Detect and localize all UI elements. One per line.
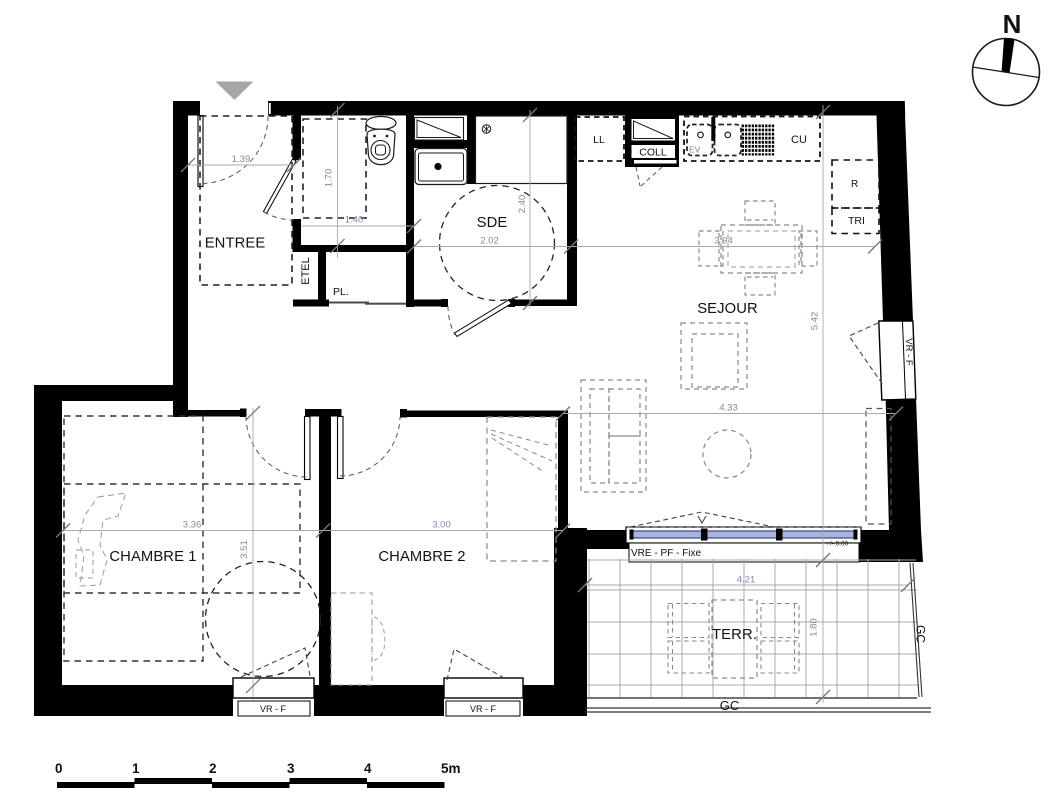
svg-text:TRI: TRI: [848, 215, 865, 227]
svg-text:2.02: 2.02: [480, 236, 499, 247]
svg-text:5.42: 5.42: [810, 312, 821, 331]
svg-text:1.40: 1.40: [345, 215, 364, 226]
svg-text:VR - F: VR - F: [903, 338, 914, 366]
svg-text:R: R: [851, 179, 858, 190]
svg-text:+/- 0.00: +/- 0.00: [826, 541, 849, 548]
svg-text:4: 4: [364, 761, 372, 776]
svg-text:VR - F: VR - F: [260, 704, 287, 714]
svg-text:3: 3: [287, 761, 295, 776]
svg-text:0: 0: [55, 761, 63, 776]
svg-text:TERR.: TERR.: [712, 627, 757, 643]
svg-text:CU: CU: [791, 134, 807, 146]
svg-text:4.33: 4.33: [719, 403, 738, 414]
svg-text:LL: LL: [593, 134, 605, 146]
svg-text:COLL: COLL: [639, 147, 667, 159]
svg-text:CHAMBRE 2: CHAMBRE 2: [378, 549, 465, 565]
svg-text:VRE - PF - Fixe: VRE - PF - Fixe: [631, 548, 701, 559]
svg-text:1.39: 1.39: [232, 154, 251, 165]
svg-text:1: 1: [132, 761, 140, 776]
svg-text:SDE: SDE: [477, 215, 508, 231]
svg-text:SEJOUR: SEJOUR: [697, 301, 758, 317]
svg-text:1.70: 1.70: [324, 169, 335, 188]
svg-text:3.94: 3.94: [714, 236, 733, 247]
svg-text:3.00: 3.00: [432, 520, 451, 531]
svg-text:ETEL: ETEL: [300, 257, 312, 285]
svg-text:VR - F: VR - F: [470, 704, 497, 714]
svg-text:5m: 5m: [441, 761, 461, 776]
svg-text:2.40: 2.40: [517, 195, 528, 214]
svg-text:4.21: 4.21: [737, 575, 756, 586]
svg-text:2: 2: [209, 761, 217, 776]
svg-text:GC: GC: [720, 698, 740, 713]
svg-text:CHAMBRE 1: CHAMBRE 1: [109, 549, 196, 565]
svg-text:3.36: 3.36: [183, 520, 202, 531]
svg-text:EV: EV: [689, 145, 701, 155]
svg-text:N: N: [1003, 9, 1022, 39]
svg-text:ENTREE: ENTREE: [205, 236, 266, 252]
svg-text:GC: GC: [914, 625, 928, 643]
svg-text:1.80: 1.80: [809, 618, 820, 637]
svg-text:3.51: 3.51: [239, 540, 250, 559]
svg-text:PL.: PL.: [333, 286, 349, 298]
